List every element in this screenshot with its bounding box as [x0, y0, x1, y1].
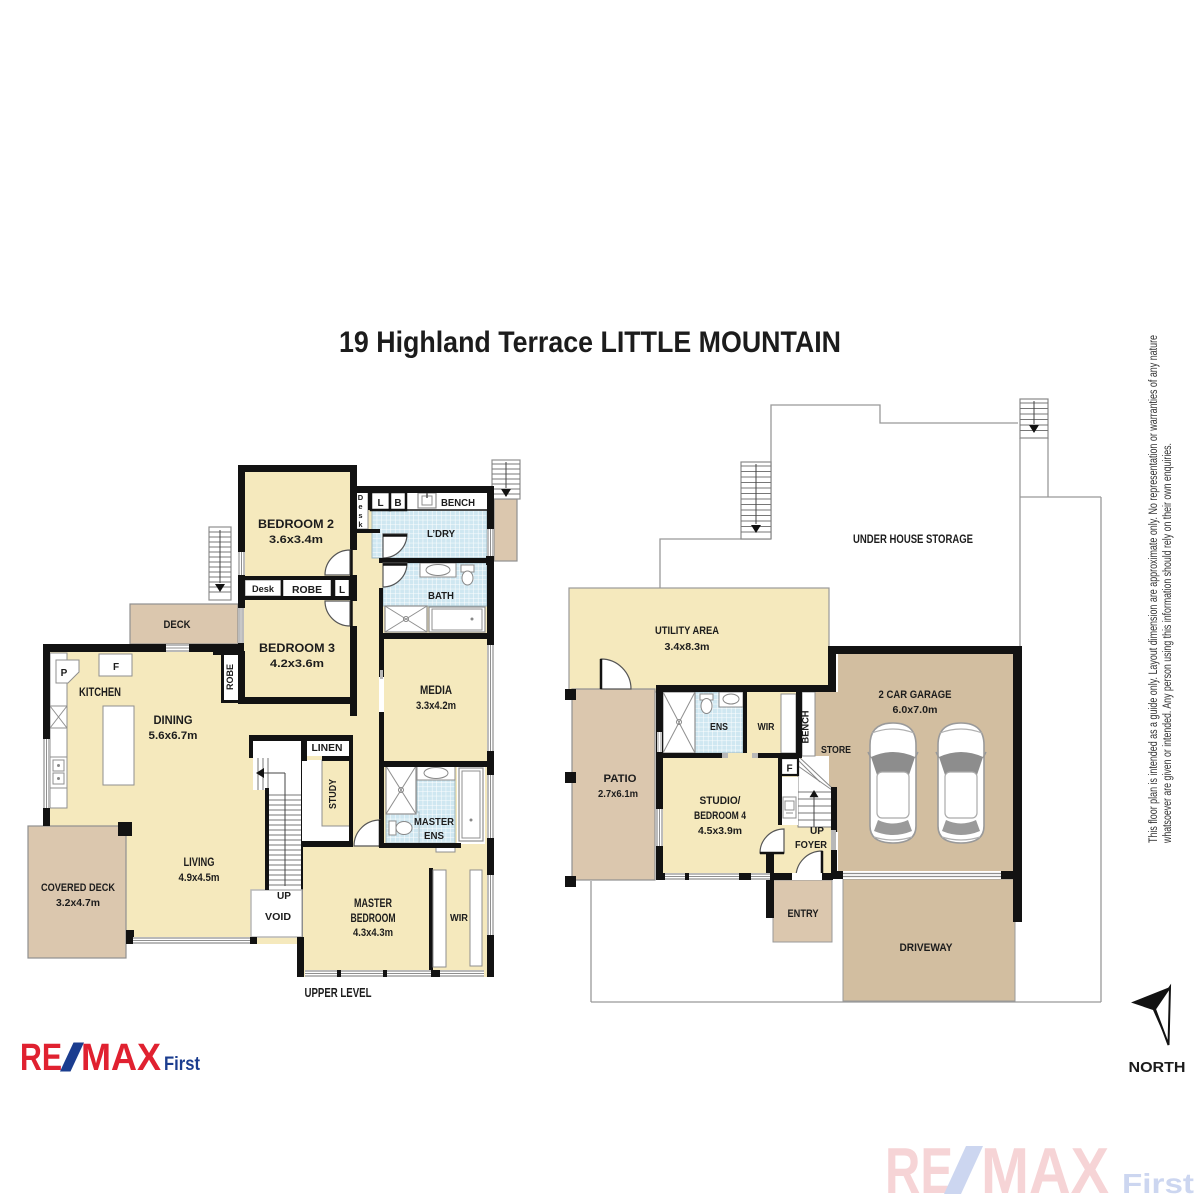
svg-text:MASTER: MASTER — [354, 896, 392, 910]
svg-text:ROBE: ROBE — [225, 664, 236, 690]
svg-text:L: L — [339, 585, 345, 596]
svg-text:D: D — [358, 493, 364, 502]
svg-text:RE: RE — [20, 1037, 62, 1079]
svg-text:BATH: BATH — [428, 590, 454, 602]
svg-text:BEDROOM 3: BEDROOM 3 — [259, 641, 335, 655]
svg-text:DRIVEWAY: DRIVEWAY — [900, 942, 954, 954]
svg-text:2 CAR GARAGE: 2 CAR GARAGE — [879, 689, 952, 701]
svg-text:BENCH: BENCH — [801, 710, 812, 743]
svg-text:BENCH: BENCH — [441, 497, 475, 509]
svg-text:First: First — [1122, 1168, 1194, 1199]
svg-text:F: F — [786, 764, 792, 775]
svg-text:F: F — [113, 662, 119, 673]
svg-text:BEDROOM 4: BEDROOM 4 — [694, 810, 747, 822]
svg-text:3.6x3.4m: 3.6x3.4m — [269, 534, 323, 546]
svg-text:e: e — [358, 502, 362, 511]
svg-text:UP: UP — [277, 890, 291, 902]
svg-text:STORE: STORE — [821, 744, 851, 756]
svg-text:MEDIA: MEDIA — [420, 683, 452, 697]
svg-text:RE: RE — [885, 1134, 953, 1200]
svg-text:UP: UP — [810, 825, 824, 837]
svg-text:3.3x4.2m: 3.3x4.2m — [416, 700, 456, 712]
svg-text:UTILITY AREA: UTILITY AREA — [655, 625, 719, 637]
svg-text:3.2x4.7m: 3.2x4.7m — [56, 897, 100, 909]
svg-text:DINING: DINING — [154, 713, 193, 727]
svg-text:FOYER: FOYER — [795, 839, 827, 851]
svg-text:First: First — [164, 1054, 201, 1075]
svg-text:WIR: WIR — [758, 721, 775, 733]
svg-text:PATIO: PATIO — [604, 773, 637, 785]
svg-text:MAX: MAX — [81, 1037, 162, 1079]
svg-text:2.7x6.1m: 2.7x6.1m — [598, 788, 638, 800]
svg-text:s: s — [358, 511, 362, 520]
svg-text:COVERED DECK: COVERED DECK — [41, 882, 115, 894]
svg-text:L: L — [377, 498, 383, 509]
svg-text:5.6x6.7m: 5.6x6.7m — [149, 730, 198, 742]
svg-text:NORTH: NORTH — [1129, 1059, 1186, 1076]
svg-text:This floor plan is intended as: This floor plan is intended as a guide o… — [1148, 335, 1160, 843]
svg-text:4.3x4.3m: 4.3x4.3m — [353, 927, 393, 939]
svg-text:L’DRY: L’DRY — [427, 528, 455, 540]
svg-text:4.2x3.6m: 4.2x3.6m — [270, 658, 324, 670]
svg-text:BEDROOM 2: BEDROOM 2 — [258, 517, 334, 531]
svg-text:B: B — [394, 498, 401, 509]
svg-text:P: P — [61, 668, 68, 679]
svg-text:Desk: Desk — [252, 584, 275, 594]
svg-text:ENS: ENS — [424, 830, 444, 842]
svg-text:MAX: MAX — [981, 1134, 1109, 1200]
svg-text:KITCHEN: KITCHEN — [79, 685, 121, 699]
svg-text:UNDER HOUSE STORAGE: UNDER HOUSE STORAGE — [853, 532, 973, 546]
svg-text:BEDROOM: BEDROOM — [351, 911, 396, 925]
svg-text:LIVING: LIVING — [184, 855, 215, 869]
svg-text:DECK: DECK — [164, 619, 191, 631]
svg-text:VOID: VOID — [265, 911, 291, 923]
svg-text:STUDIO/: STUDIO/ — [700, 795, 741, 807]
svg-text:MASTER: MASTER — [414, 816, 454, 828]
svg-text:whatsoever are given or intend: whatsoever are given or intended. Any pe… — [1162, 443, 1174, 844]
svg-text:LINEN: LINEN — [312, 742, 343, 754]
svg-text:ENTRY: ENTRY — [788, 908, 820, 920]
svg-text:UPPER LEVEL: UPPER LEVEL — [305, 985, 372, 1000]
svg-text:6.0x7.0m: 6.0x7.0m — [893, 704, 938, 716]
svg-text:4.9x4.5m: 4.9x4.5m — [179, 872, 220, 884]
svg-text:4.5x3.9m: 4.5x3.9m — [698, 825, 742, 837]
svg-text:STUDY: STUDY — [327, 779, 339, 809]
svg-text:3.4x8.3m: 3.4x8.3m — [665, 641, 710, 653]
svg-text:19 Highland Terrace LITTLE MOU: 19 Highland Terrace LITTLE MOUNTAIN — [339, 326, 841, 359]
svg-text:ENS: ENS — [710, 721, 728, 733]
svg-text:WIR: WIR — [450, 912, 468, 924]
svg-text:ROBE: ROBE — [292, 584, 322, 596]
